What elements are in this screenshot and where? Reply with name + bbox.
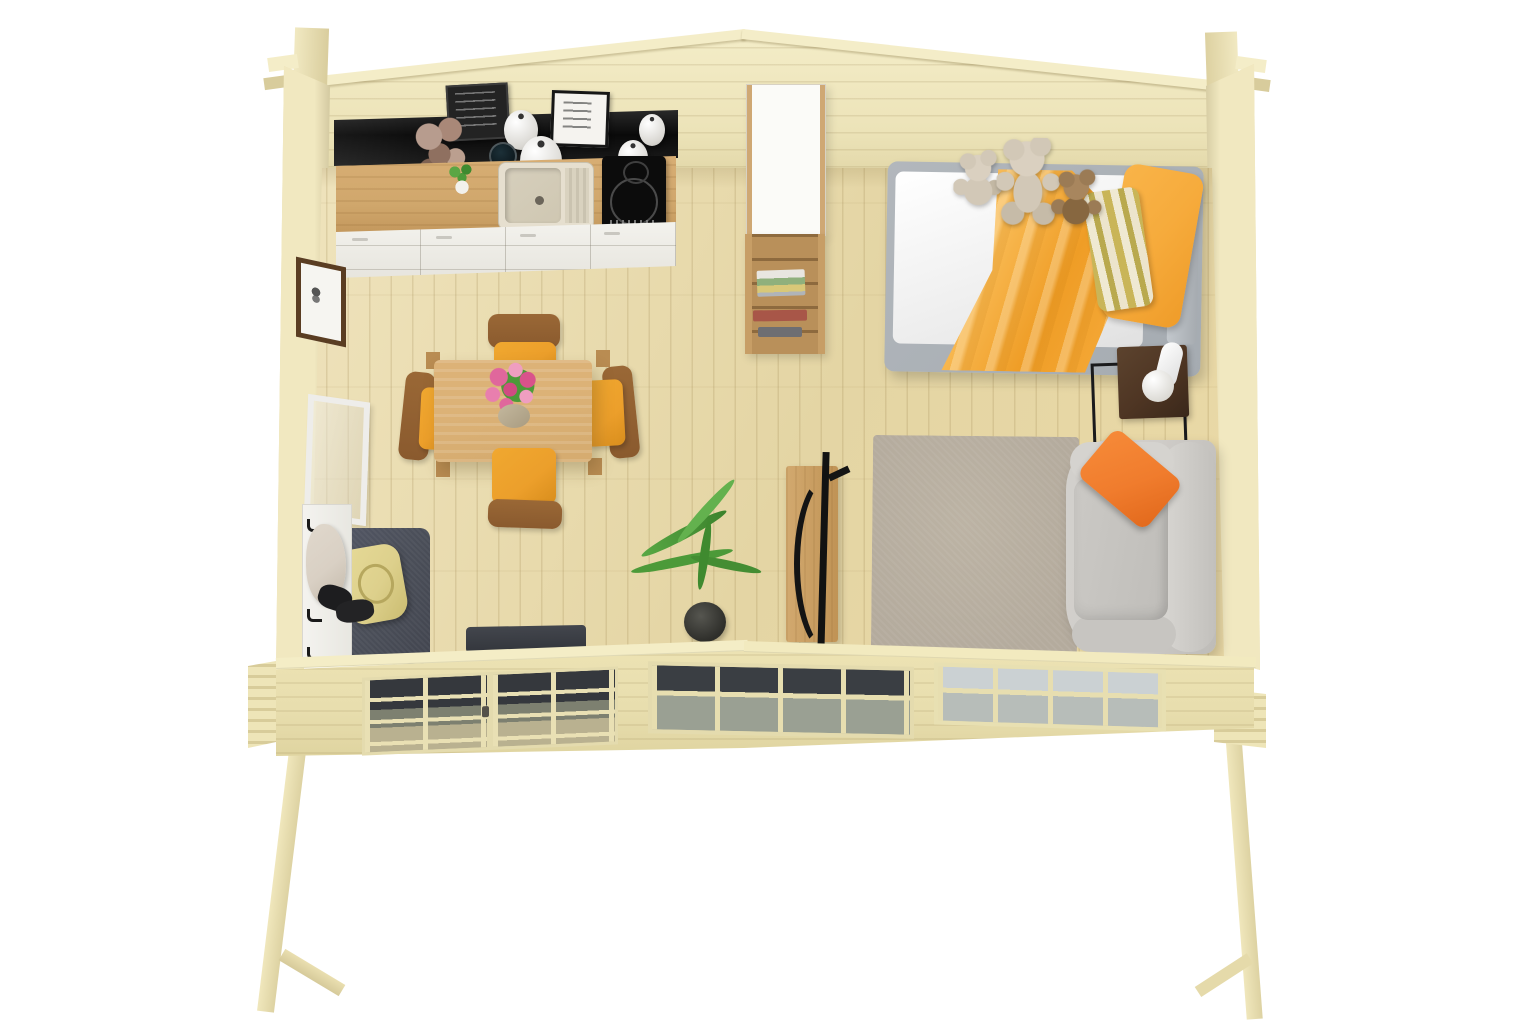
burner-large <box>610 178 658 226</box>
book-dark <box>758 327 802 337</box>
front-door <box>362 666 618 751</box>
table-leg <box>596 350 610 367</box>
sink-drainboard <box>565 168 589 223</box>
cabinet-handle <box>604 232 620 235</box>
cabinet-handle <box>352 238 368 241</box>
cabinet-handle <box>436 236 452 239</box>
table-leg <box>436 460 450 477</box>
cabin-render <box>0 0 1536 1025</box>
wardrobe <box>746 84 826 236</box>
bed <box>884 161 1204 376</box>
door-leaf <box>490 666 618 750</box>
burner-small <box>623 161 649 184</box>
cooktop <box>602 156 666 230</box>
rocker-arc <box>794 474 864 654</box>
table-leg <box>588 458 602 475</box>
cabinet-handle <box>520 234 536 237</box>
counter-plant <box>444 160 480 194</box>
front-window-middle <box>648 661 914 739</box>
chair-bottom-seat <box>492 448 556 504</box>
sink-basin <box>505 168 561 223</box>
sink-drain <box>535 196 544 205</box>
door-leaf <box>362 672 490 756</box>
front-window-right <box>934 662 1166 731</box>
books-stack <box>757 269 806 297</box>
sofa-arm-bottom <box>1072 616 1176 652</box>
coat-hook <box>307 609 322 622</box>
kitchen-sink <box>498 162 594 230</box>
book-red <box>753 310 807 322</box>
lamp-head <box>1142 370 1174 402</box>
chair-bottom-back <box>488 499 563 530</box>
plant-pot <box>684 602 726 642</box>
brace-left <box>279 949 346 996</box>
sign-lettering <box>563 101 592 132</box>
jar-b <box>639 114 665 146</box>
wall-picture <box>296 257 346 348</box>
dining-set <box>396 308 646 578</box>
teddy-bear-brown <box>1051 168 1106 231</box>
rug <box>871 435 1079 657</box>
sofa <box>1066 440 1216 654</box>
picture-content <box>309 282 323 305</box>
door-handle <box>482 706 489 717</box>
flower-vase <box>498 404 530 428</box>
framed-sign <box>550 90 610 148</box>
